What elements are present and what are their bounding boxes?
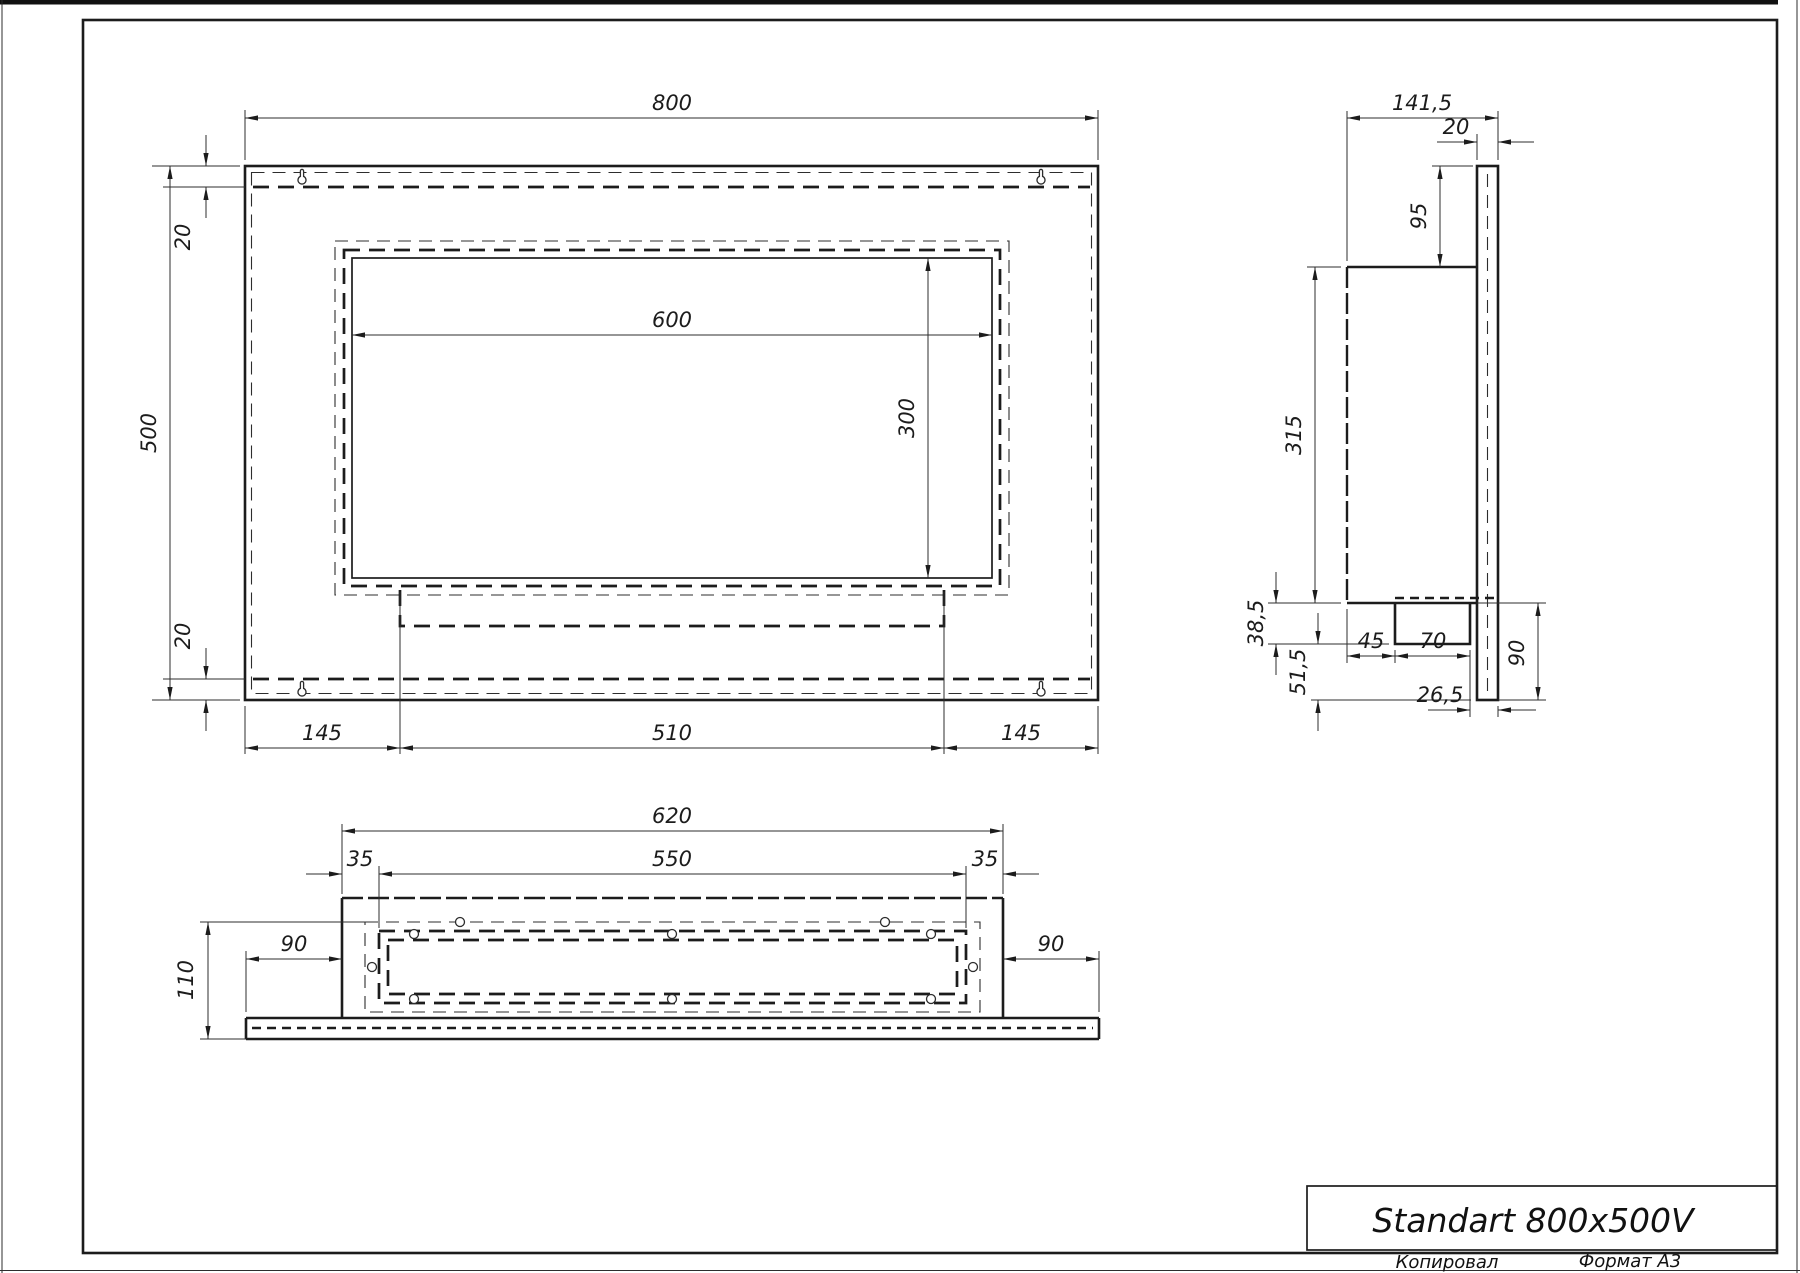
drawing-frame <box>83 20 1777 1253</box>
dim-label: 90 <box>1505 640 1529 667</box>
keyhole-slot-icon <box>298 169 306 184</box>
dim-label: 70 <box>1420 629 1447 653</box>
dim-label: 500 <box>137 413 161 453</box>
screw-hole <box>368 963 377 972</box>
dim-side-tray-drop: 38,5 <box>1244 572 1389 675</box>
keyhole-slot-icon <box>298 681 306 696</box>
dim-bottom-right-wing: 90 <box>1003 932 1099 1012</box>
drawing-title: Standart 800x500V <box>1372 1201 1696 1240</box>
dim-label: 26,5 <box>1417 683 1464 707</box>
screw-hole <box>927 930 936 939</box>
dim-front-bottom-chain: 145 510 145 <box>245 592 1098 754</box>
bottom-view: 620 35 550 35 110 90 <box>174 804 1099 1039</box>
dim-label: 95 <box>1407 203 1431 230</box>
keyhole-slot-icon <box>1037 681 1045 696</box>
screw-hole <box>410 930 419 939</box>
screw-hole <box>668 995 677 1004</box>
dim-label: 510 <box>652 721 692 745</box>
dim-label: 145 <box>1001 721 1041 745</box>
sheet-borders <box>0 0 1800 1273</box>
dim-front-top-inset: 20 <box>163 135 245 250</box>
dim-label: 600 <box>652 308 692 332</box>
dim-bottom-left-wing: 90 <box>246 932 342 1012</box>
dim-label: 35 <box>972 847 999 871</box>
dim-bottom-total-depth: 110 <box>174 922 365 1039</box>
dim-label: 110 <box>174 960 198 1000</box>
screw-hole <box>456 918 465 927</box>
dim-side-top-to-body: 95 <box>1407 166 1473 267</box>
screw-hole <box>927 995 936 1004</box>
dim-label: 38,5 <box>1244 600 1268 647</box>
dim-side-body-height: 315 <box>1282 267 1341 603</box>
dim-label: 35 <box>347 847 374 871</box>
dim-label: 550 <box>652 847 692 871</box>
screw-hole <box>668 930 677 939</box>
front-body-outline <box>245 166 1098 700</box>
bottom-tray-hidden <box>388 940 957 994</box>
dim-label: 90 <box>281 932 308 956</box>
bottom-opening-flange-hidden <box>379 931 966 1003</box>
engineering-drawing: 800 500 20 20 600 <box>0 0 1800 1273</box>
side-view: 141,5 20 95 315 38,5 <box>1244 91 1546 731</box>
dim-label: 141,5 <box>1392 91 1452 115</box>
dim-label: 315 <box>1282 415 1306 455</box>
screw-hole <box>881 918 890 927</box>
dim-front-total-width: 800 <box>245 91 1098 160</box>
dim-label: 90 <box>1038 932 1065 956</box>
dim-front-opening-width: 600 <box>352 308 992 335</box>
dim-label: 20 <box>171 623 195 650</box>
dim-label: 800 <box>652 91 692 115</box>
screw-hole <box>969 963 978 972</box>
dim-side-plate-thickness: 20 <box>1437 115 1534 160</box>
screw-hole <box>410 995 419 1004</box>
dim-label: 145 <box>302 721 342 745</box>
front-view: 800 500 20 20 600 <box>137 91 1098 754</box>
dim-label: 20 <box>171 224 195 251</box>
dim-label: 51,5 <box>1286 649 1310 696</box>
dim-label: 45 <box>1358 629 1385 653</box>
keyhole-slots <box>298 169 1045 696</box>
sheet-top-edge <box>0 0 1778 5</box>
dim-bottom-opening-chain: 35 550 35 <box>306 847 1039 928</box>
dim-front-opening-height: 300 <box>895 258 928 578</box>
dim-label: 620 <box>652 804 692 828</box>
dim-front-bottom-inset: 20 <box>163 623 245 731</box>
title-block: Standart 800x500V Копировал Формат А3 <box>1307 1186 1777 1273</box>
dim-side-total-depth: 141,5 <box>1347 91 1498 261</box>
keyhole-slot-icon <box>1037 169 1045 184</box>
copied-label: Копировал <box>1396 1252 1499 1273</box>
format-label: Формат А3 <box>1579 1251 1682 1272</box>
dim-label: 300 <box>895 398 919 438</box>
dim-label: 20 <box>1443 115 1470 139</box>
